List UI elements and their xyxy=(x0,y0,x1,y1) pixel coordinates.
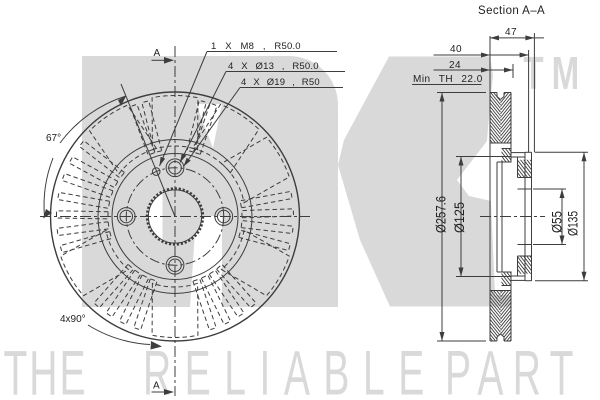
svg-text:Min TH 22.0: Min TH 22.0 xyxy=(413,74,483,85)
svg-text:4x90°: 4x90° xyxy=(60,314,86,325)
svg-text:Section A–A: Section A–A xyxy=(478,5,545,17)
svg-text:RELIABLE: RELIABLE xyxy=(143,339,438,400)
svg-text:47: 47 xyxy=(505,27,517,38)
svg-text:4 X Ø19 , R50: 4 X Ø19 , R50 xyxy=(241,77,320,88)
svg-text:4 X Ø13 , R50.0: 4 X Ø13 , R50.0 xyxy=(228,61,319,72)
svg-text:A: A xyxy=(154,48,161,59)
svg-text:THE: THE xyxy=(3,339,87,400)
svg-text:24: 24 xyxy=(449,60,461,71)
svg-text:A: A xyxy=(153,381,160,392)
svg-text:Ø257.6: Ø257.6 xyxy=(433,196,449,233)
svg-text:Ø135: Ø135 xyxy=(565,211,581,236)
svg-text:Ø125: Ø125 xyxy=(451,202,467,233)
svg-text:67°: 67° xyxy=(46,133,61,144)
svg-text:TM: TM xyxy=(523,49,587,99)
svg-text:Ø55: Ø55 xyxy=(549,211,565,233)
svg-text:40: 40 xyxy=(450,44,462,55)
svg-text:PART: PART xyxy=(445,339,583,400)
svg-text:1 X M8 , R50.0: 1 X M8 , R50.0 xyxy=(211,41,301,52)
